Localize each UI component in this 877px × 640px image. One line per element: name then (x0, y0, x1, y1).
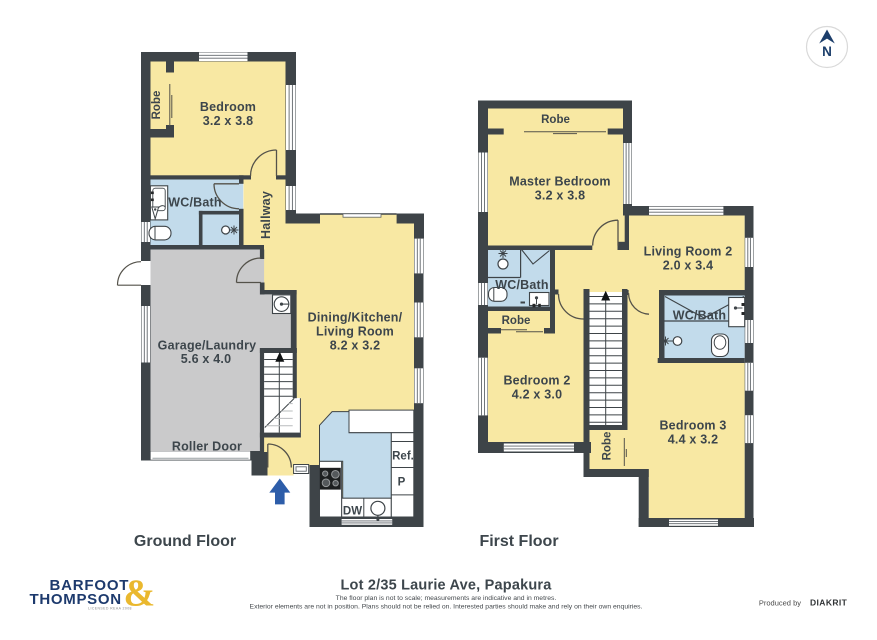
svg-text:Roller Door: Roller Door (172, 440, 242, 454)
svg-text:WC/Bath: WC/Bath (168, 196, 221, 210)
svg-text:Exterior elements are not in p: Exterior elements are not in position. P… (250, 604, 643, 611)
svg-text:4.4 x 3.2: 4.4 x 3.2 (668, 433, 718, 447)
svg-text:Bedroom: Bedroom (200, 100, 256, 114)
svg-text:WC/Bath: WC/Bath (673, 309, 726, 323)
svg-text:Ref.: Ref. (392, 451, 414, 463)
svg-text:Robe: Robe (602, 432, 614, 461)
svg-text:Robe: Robe (541, 114, 570, 126)
svg-text:8.2 x 3.2: 8.2 x 3.2 (330, 339, 380, 353)
svg-text:N: N (822, 44, 832, 59)
svg-text:Living Room: Living Room (316, 325, 394, 339)
svg-text:Garage/Laundry: Garage/Laundry (158, 339, 257, 353)
svg-text:Produced by: Produced by (759, 599, 801, 608)
svg-text:DW: DW (343, 506, 362, 518)
svg-text:Robe: Robe (151, 91, 163, 120)
svg-text:Lot 2/35 Laurie Ave, Papakura: Lot 2/35 Laurie Ave, Papakura (340, 578, 552, 594)
svg-text:DIAKRIT: DIAKRIT (810, 598, 848, 608)
svg-text:LICENSED REAA 2008: LICENSED REAA 2008 (88, 607, 132, 611)
svg-text:First Floor: First Floor (479, 533, 558, 550)
svg-text:Hallway: Hallway (259, 191, 273, 239)
svg-text:Living Room 2: Living Room 2 (644, 245, 733, 259)
svg-text:4.2 x 3.0: 4.2 x 3.0 (512, 388, 562, 402)
svg-text:5.6 x 4.0: 5.6 x 4.0 (181, 352, 231, 366)
svg-text:Dining/Kitchen/: Dining/Kitchen/ (308, 311, 403, 325)
svg-text:Robe: Robe (502, 315, 531, 327)
svg-text:Bedroom 2: Bedroom 2 (503, 374, 570, 388)
svg-text:WC/Bath: WC/Bath (495, 278, 548, 292)
svg-text:Ground Floor: Ground Floor (134, 533, 236, 550)
svg-text:The floor plan is not to scale: The floor plan is not to scale; measurem… (336, 595, 557, 602)
svg-text:Bedroom 3: Bedroom 3 (659, 419, 726, 433)
svg-text:P: P (398, 477, 406, 489)
svg-text:3.2 x 3.8: 3.2 x 3.8 (203, 114, 253, 128)
svg-text:2.0 x 3.4: 2.0 x 3.4 (663, 259, 713, 273)
svg-text:THOMPSON: THOMPSON (30, 591, 122, 608)
svg-text:Master Bedroom: Master Bedroom (509, 175, 610, 189)
svg-text:3.2 x 3.8: 3.2 x 3.8 (535, 189, 585, 203)
